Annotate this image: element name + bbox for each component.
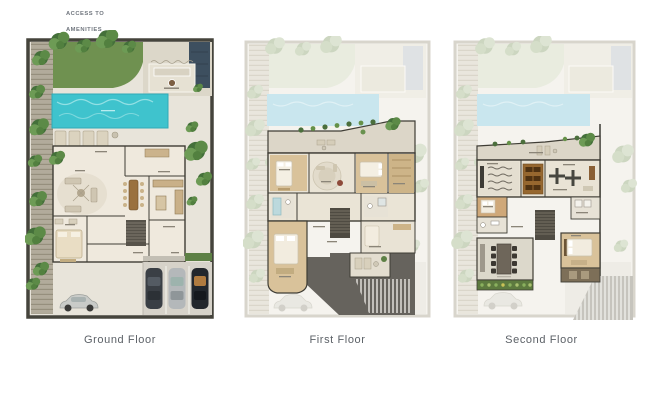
indoor-area [53, 146, 185, 262]
car-icon [169, 268, 186, 309]
hedge [185, 253, 212, 261]
first-floor-panel [243, 36, 432, 320]
access-note-line1: ACCESS TO [66, 11, 104, 17]
parked-cars [146, 268, 209, 309]
cinema-room [479, 162, 519, 195]
balcony [350, 253, 390, 277]
first-floor-plan [243, 36, 432, 320]
car-icon [146, 268, 163, 309]
bedroom [268, 221, 307, 293]
first-floor-caption: First Floor [243, 334, 432, 346]
ghost-pool [477, 94, 590, 126]
ground-floor-plan [25, 30, 215, 320]
bathroom [364, 196, 388, 217]
shelving [523, 164, 543, 194]
ground-floor-panel [25, 30, 215, 320]
staircase [126, 220, 146, 246]
fire-pit [169, 80, 176, 87]
ground-floor-caption: Ground Floor [25, 334, 215, 346]
dining-table [497, 244, 511, 274]
bedroom [270, 155, 307, 191]
second-floor-caption: Second Floor [445, 334, 638, 346]
floorplan-sheet: ACCESS TO AMENITIES [0, 0, 660, 405]
second-floor-panel [445, 36, 638, 320]
bathroom [271, 196, 294, 218]
bathtub [273, 198, 281, 215]
laundry-room [571, 197, 600, 219]
staircase [535, 210, 555, 240]
wardrobe [389, 154, 414, 193]
swimming-pool [52, 94, 168, 128]
bedroom [561, 233, 600, 268]
second-floor-plan [445, 36, 638, 320]
planter [477, 280, 533, 290]
dining-table-room [477, 238, 533, 280]
cabana-seating [149, 61, 195, 93]
terrace [561, 268, 600, 282]
wardrobe [145, 149, 169, 157]
bathroom [477, 217, 507, 233]
car-icon [192, 268, 209, 309]
living-room [57, 173, 107, 215]
staircase [330, 208, 350, 238]
